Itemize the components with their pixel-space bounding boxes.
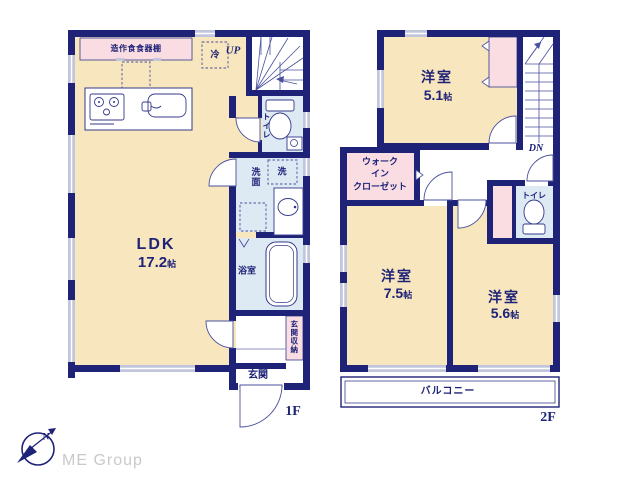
- bedroom-mid-name: 洋室: [488, 290, 520, 304]
- wic-label-line2: イン: [371, 170, 389, 179]
- laundry-label: 洗: [277, 168, 286, 177]
- stairs-down-label: DN: [529, 144, 543, 154]
- bedroom-small-name: 洋室: [421, 70, 453, 84]
- balcony-label: バルコニー: [421, 387, 476, 397]
- floor1-label: 1F: [285, 405, 301, 419]
- floor2-label: 2F: [540, 411, 556, 425]
- washroom-label: 洗面: [251, 167, 260, 187]
- wic-label-line1: ウォーク: [362, 158, 398, 167]
- bathtub-icon: [266, 242, 297, 306]
- front-door-arc: [240, 385, 282, 427]
- compass-north-label: N: [43, 433, 50, 442]
- toilet-label-1f: トイレ: [262, 113, 270, 140]
- stairs-up-label: UP: [226, 46, 241, 57]
- floorplan-drawing: [0, 0, 640, 480]
- bedroom-small-size-value: 5.1: [424, 87, 443, 103]
- bedroom-mid-size-unit: 帖: [510, 310, 519, 320]
- compass-icon: [17, 428, 56, 465]
- washbasin-icon: [274, 188, 303, 235]
- company-logo-text: ME Group: [62, 453, 143, 469]
- bedroom-small-size: 5.1帖: [424, 88, 452, 104]
- bedroom-mid-size: 5.6帖: [491, 306, 519, 322]
- genkan-label: 玄関: [248, 371, 268, 381]
- kitchen-counter: [85, 88, 192, 130]
- toilet-icon-2f: [523, 200, 545, 234]
- bedroom-large-name: 洋室: [381, 269, 413, 283]
- bedroom-large-size: 7.5帖: [384, 286, 412, 302]
- floor1-plan: [68, 30, 310, 427]
- bedroom-mid-size-value: 5.6: [491, 305, 510, 321]
- fridge-label: 冷: [210, 51, 219, 60]
- genkan-storage-label: 玄関収納: [290, 320, 298, 354]
- ldk-size: 17.2帖: [138, 255, 176, 271]
- floorplan-page: 造作食食器棚 冷 UP トイレ 洗 洗面 浴室 LDK 17.2帖 玄関収納 玄…: [0, 0, 640, 480]
- ldk-name: LDK: [137, 237, 176, 253]
- cupboard-label: 造作食食器棚: [111, 45, 162, 53]
- bath-label: 浴室: [238, 267, 256, 276]
- bedroom-large-size-value: 7.5: [384, 285, 403, 301]
- bedroom-small-size-unit: 帖: [443, 92, 452, 102]
- ldk-size-unit: 帖: [167, 259, 176, 269]
- ldk-size-value: 17.2: [138, 254, 167, 271]
- wic-label-line3: クローゼット: [353, 183, 407, 192]
- genkan-step-edge: [236, 363, 286, 369]
- closet-2f: [493, 186, 512, 238]
- toilet-label-2f: トイレ: [522, 192, 546, 200]
- bedroom-large-size-unit: 帖: [403, 290, 412, 300]
- bedroom-small-closet: [489, 37, 517, 87]
